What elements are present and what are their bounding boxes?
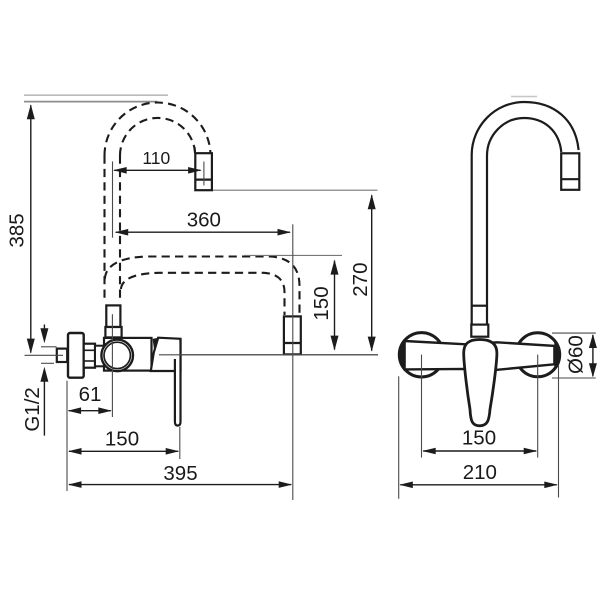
svg-text:385: 385 (6, 213, 29, 247)
svg-text:110: 110 (142, 148, 170, 168)
svg-text:150: 150 (462, 427, 496, 450)
svg-text:270: 270 (349, 262, 372, 296)
svg-text:395: 395 (163, 462, 197, 485)
svg-text:360: 360 (187, 209, 221, 232)
svg-text:150: 150 (105, 428, 139, 451)
svg-text:150: 150 (310, 286, 333, 320)
svg-text:210: 210 (463, 461, 497, 484)
svg-text:Ø60: Ø60 (564, 335, 587, 374)
svg-text:G1/2: G1/2 (21, 387, 44, 431)
svg-text:61: 61 (79, 383, 102, 406)
